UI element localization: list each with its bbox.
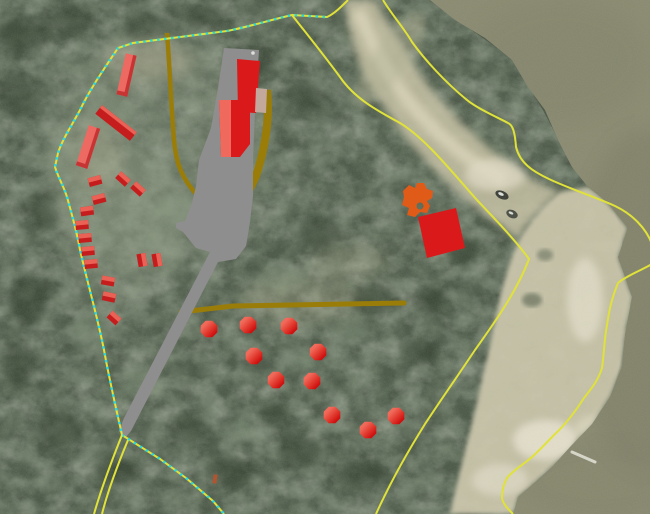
main-building-part-2 xyxy=(219,100,231,157)
map-viewport[interactable] xyxy=(0,0,650,514)
campsite-hex-marker-2 xyxy=(240,317,257,334)
main-building-part-4 xyxy=(255,88,267,113)
campsite-hex-marker-5 xyxy=(310,344,327,361)
campsite-hex-marker-10 xyxy=(388,408,405,425)
shed-8 xyxy=(81,246,95,256)
campsite-hex-marker-1 xyxy=(201,321,218,338)
campsite-hex-marker-8 xyxy=(324,407,341,424)
campsite-hex-marker-3 xyxy=(281,318,298,335)
campsite-hex-marker-4 xyxy=(246,348,263,365)
shed-6 xyxy=(75,220,89,230)
aerial-map-canvas[interactable] xyxy=(0,0,650,514)
campsite-hex-marker-6 xyxy=(268,372,285,389)
shed-7 xyxy=(78,233,92,243)
shed-5 xyxy=(80,206,94,217)
campsite-hex-marker-7 xyxy=(304,373,321,390)
campsite-hex-marker-9 xyxy=(360,422,377,439)
rooftop-dot xyxy=(251,51,255,55)
shed-9 xyxy=(84,259,98,269)
